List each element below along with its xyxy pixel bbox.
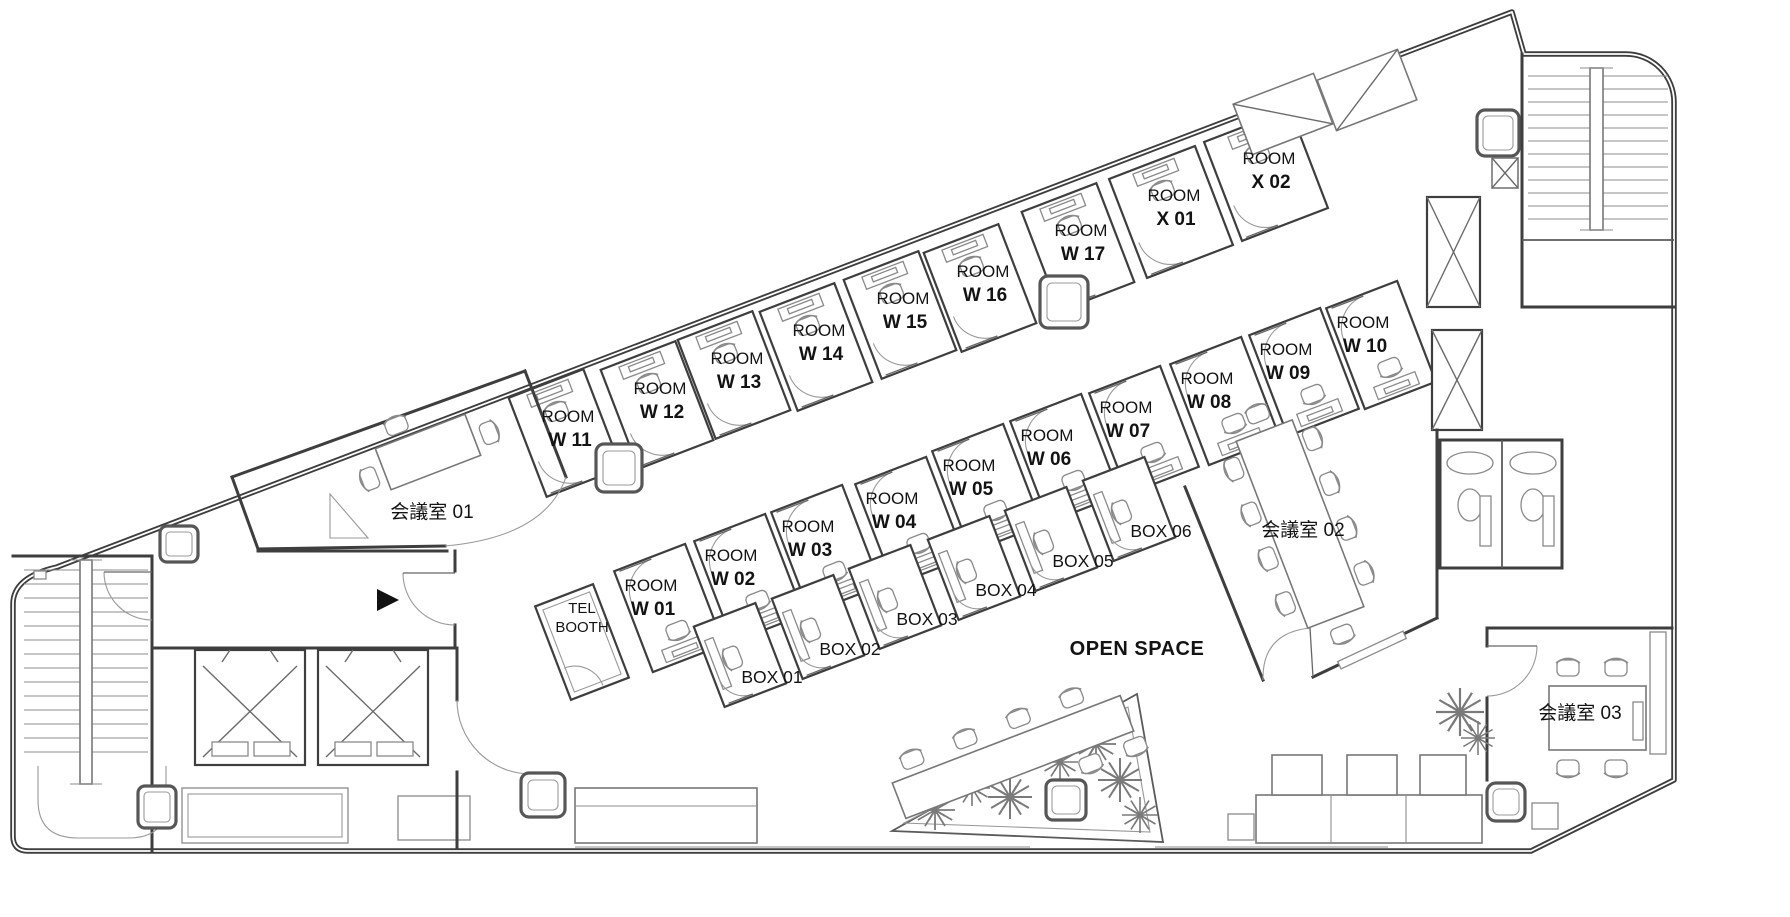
label-meeting-room-02: 会議室 02	[1261, 519, 1344, 541]
label-meeting-room-01: 会議室 01	[390, 501, 473, 523]
duct-4	[160, 526, 198, 562]
label-room-w13-1: ROOM	[711, 349, 764, 368]
label-room-w07-1: ROOM	[1100, 398, 1153, 417]
label-room-w15-1: ROOM	[877, 289, 930, 308]
sink	[1510, 452, 1556, 474]
label-room-x02-2: X 02	[1251, 172, 1290, 193]
label-room-w02-2: W 02	[711, 569, 755, 590]
label-room-w05-1: ROOM	[943, 456, 996, 475]
sink	[1447, 452, 1493, 474]
label-room-w10-2: W 10	[1343, 336, 1387, 357]
sofa-back	[1347, 755, 1397, 795]
label-room-w13-2: W 13	[717, 372, 761, 393]
label-room-w03-1: ROOM	[782, 517, 835, 536]
equipment-box	[398, 796, 470, 840]
sofa-back	[1272, 755, 1322, 795]
label-open-space: OPEN SPACE	[1070, 638, 1205, 660]
kitchen-counter	[575, 788, 757, 843]
label-room-w09-2: W 09	[1266, 363, 1310, 384]
toilet-icon	[1458, 489, 1482, 521]
sofa-base	[1256, 795, 1482, 843]
label-box05: BOX 05	[1052, 551, 1113, 571]
label-room-w05-2: W 05	[949, 479, 994, 500]
label-room-w10-1: ROOM	[1337, 313, 1390, 332]
label-room-w04-2: W 04	[872, 512, 917, 533]
label-room-w11-2: W 11	[548, 430, 592, 451]
elevator-2	[318, 650, 428, 765]
label-room-w01-1: ROOM	[625, 576, 678, 595]
duct-3	[1477, 110, 1519, 156]
sofa-back	[1420, 755, 1466, 795]
stall-door	[1480, 496, 1491, 546]
floor-plan-canvas: 会議室 01 会議室 02 会議室 03 OPEN SPACE TEL BOOT…	[0, 0, 1790, 917]
label-room-w06-1: ROOM	[1021, 426, 1074, 445]
label-room-w08-1: ROOM	[1181, 369, 1234, 388]
label-room-w09-1: ROOM	[1260, 340, 1313, 359]
label-box01: BOX 01	[741, 667, 802, 687]
label-room-w17-2: W 17	[1061, 244, 1105, 265]
cabinet	[1650, 632, 1666, 754]
label-room-x01-2: X 01	[1156, 209, 1196, 230]
label-room-w01-2: W 01	[631, 599, 676, 620]
label-room-w14-1: ROOM	[793, 321, 846, 340]
label-room-w15-2: W 15	[883, 312, 928, 333]
duct-1	[596, 444, 642, 492]
planter-box	[1046, 780, 1086, 820]
label-room-w17-1: ROOM	[1055, 221, 1108, 240]
label-room-w16-1: ROOM	[957, 262, 1010, 281]
duct-6	[521, 773, 565, 817]
stair-handrail	[80, 560, 92, 784]
label-box06: BOX 06	[1130, 521, 1191, 541]
side-table	[1228, 814, 1254, 840]
column-marker	[34, 571, 46, 579]
stool	[1532, 803, 1558, 829]
label-room-w12-1: ROOM	[634, 379, 687, 398]
label-tel-booth-line1: TEL	[568, 600, 596, 617]
label-room-w16-2: W 16	[963, 285, 1007, 306]
stall-door	[1543, 496, 1554, 546]
stair-handrail	[1590, 68, 1603, 230]
label-tel-booth-line2: BOOTH	[555, 619, 608, 636]
floor-plan: 会議室 01 会議室 02 会議室 03 OPEN SPACE TEL BOOT…	[0, 0, 1790, 917]
label-room-w06-2: W 06	[1027, 449, 1071, 470]
duct-5	[138, 786, 176, 828]
label-room-w03-2: W 03	[788, 540, 832, 561]
label-room-w12-2: W 12	[640, 402, 684, 423]
label-room-w02-1: ROOM	[705, 546, 758, 565]
label-meeting-room-03: 会議室 03	[1538, 702, 1621, 724]
label-box03: BOX 03	[896, 609, 957, 629]
label-room-x02-1: ROOM	[1243, 149, 1296, 168]
elevator-1	[195, 650, 305, 765]
label-room-w08-2: W 08	[1187, 392, 1231, 413]
label-room-w07-2: W 07	[1106, 421, 1150, 442]
screen	[1633, 702, 1643, 740]
label-room-w11-1: ROOM	[542, 407, 595, 426]
label-room-x01-1: ROOM	[1148, 186, 1201, 205]
label-room-w04-1: ROOM	[866, 489, 919, 508]
label-box04: BOX 04	[975, 580, 1037, 600]
toilet-icon	[1521, 489, 1545, 521]
duct-2	[1040, 276, 1088, 328]
label-room-w14-2: W 14	[799, 344, 844, 365]
round-table	[1487, 783, 1525, 821]
elevator-lobby-mat	[182, 788, 348, 843]
label-box02: BOX 02	[819, 639, 880, 659]
shaft-small	[1492, 158, 1518, 188]
